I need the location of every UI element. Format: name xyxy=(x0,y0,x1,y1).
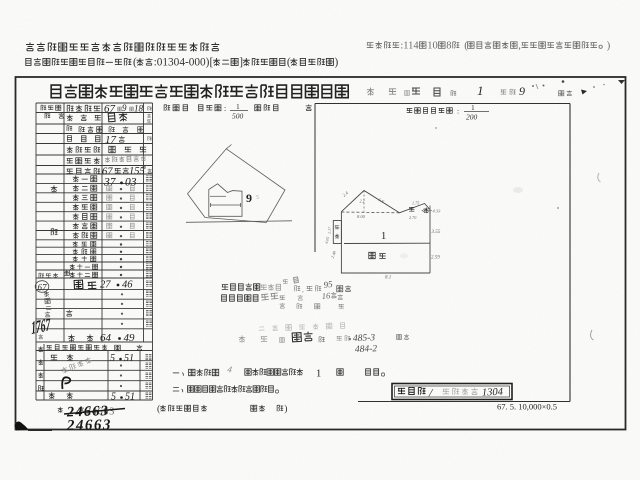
svg-text:5: 5 xyxy=(111,392,116,403)
svg-text:51: 51 xyxy=(124,353,134,364)
svg-text:9: 9 xyxy=(122,103,127,113)
svg-text:(: ( xyxy=(133,57,137,69)
svg-text:): ) xyxy=(284,403,287,414)
svg-text:2.2: 2.2 xyxy=(360,199,365,204)
svg-text:5: 5 xyxy=(256,195,259,201)
svg-text:(: ( xyxy=(157,403,160,414)
svg-text::01304-000)[: :01304-000)[ xyxy=(154,57,214,69)
svg-text:64: 64 xyxy=(100,332,112,344)
svg-text:484-2: 484-2 xyxy=(355,344,378,355)
svg-text::: : xyxy=(457,107,459,116)
svg-text:): ) xyxy=(335,57,339,69)
svg-text:67. 5. 10,000×0.5: 67. 5. 10,000×0.5 xyxy=(497,402,557,412)
svg-text:500: 500 xyxy=(232,112,244,121)
svg-text:1: 1 xyxy=(236,102,240,111)
svg-text::: : xyxy=(224,104,226,113)
svg-text:17: 17 xyxy=(105,134,117,146)
svg-text:8.00: 8.00 xyxy=(357,214,366,219)
svg-text:1: 1 xyxy=(477,83,484,98)
svg-text:27: 27 xyxy=(100,280,111,291)
svg-text:49: 49 xyxy=(124,332,136,344)
svg-text:10: 10 xyxy=(427,41,438,52)
svg-text::114: :114 xyxy=(400,41,419,52)
svg-text:1.75: 1.75 xyxy=(412,201,419,206)
svg-text:51: 51 xyxy=(125,392,135,403)
svg-text:2.59: 2.59 xyxy=(431,256,440,261)
svg-text:1: 1 xyxy=(381,231,386,242)
svg-text:,: , xyxy=(518,41,521,52)
svg-text:03: 03 xyxy=(125,177,137,189)
svg-text:24663: 24663 xyxy=(66,417,112,434)
svg-text:16: 16 xyxy=(321,290,331,301)
svg-text:8: 8 xyxy=(446,41,451,52)
svg-text:1: 1 xyxy=(316,369,321,380)
svg-text:): ) xyxy=(607,41,611,52)
svg-text:(: ( xyxy=(287,57,291,69)
svg-text:8.1: 8.1 xyxy=(385,276,391,281)
svg-text:2.70: 2.70 xyxy=(409,215,417,220)
svg-text:200: 200 xyxy=(466,113,478,122)
svg-text:9: 9 xyxy=(519,84,525,98)
svg-text:1304: 1304 xyxy=(482,387,504,399)
svg-text:4.33: 4.33 xyxy=(433,209,442,214)
svg-text:18: 18 xyxy=(134,104,144,114)
svg-text:485-3: 485-3 xyxy=(353,333,376,344)
svg-text:,: , xyxy=(302,286,304,294)
svg-text:3.55: 3.55 xyxy=(432,230,441,235)
svg-text:1: 1 xyxy=(471,103,475,112)
svg-text:]: ] xyxy=(239,57,243,69)
svg-text:9: 9 xyxy=(246,191,252,205)
svg-text:5: 5 xyxy=(110,353,115,364)
svg-text:46: 46 xyxy=(122,280,133,291)
